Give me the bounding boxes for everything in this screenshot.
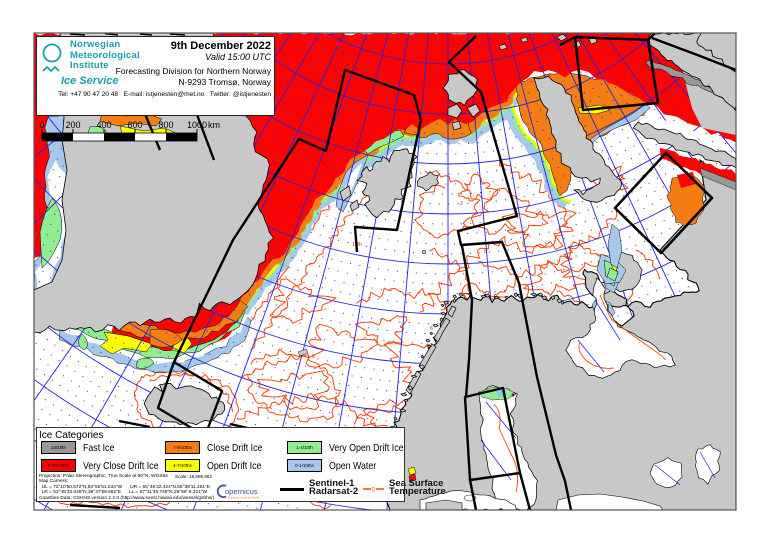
svg-text:6: 6 <box>430 326 433 332</box>
svg-text:6: 6 <box>312 354 315 360</box>
svg-text:600: 600 <box>127 120 142 130</box>
svg-text:km: km <box>208 120 220 130</box>
svg-text:0: 0 <box>372 488 376 494</box>
svg-text:1000: 1000 <box>187 120 207 130</box>
svg-text:Europe's eyes on Earth: Europe's eyes on Earth <box>228 496 259 500</box>
svg-text:2: 2 <box>460 201 463 207</box>
svg-text:400: 400 <box>96 120 111 130</box>
svg-text:0: 0 <box>39 120 44 130</box>
svg-text:200: 200 <box>65 120 80 130</box>
svg-text:800: 800 <box>158 120 173 130</box>
